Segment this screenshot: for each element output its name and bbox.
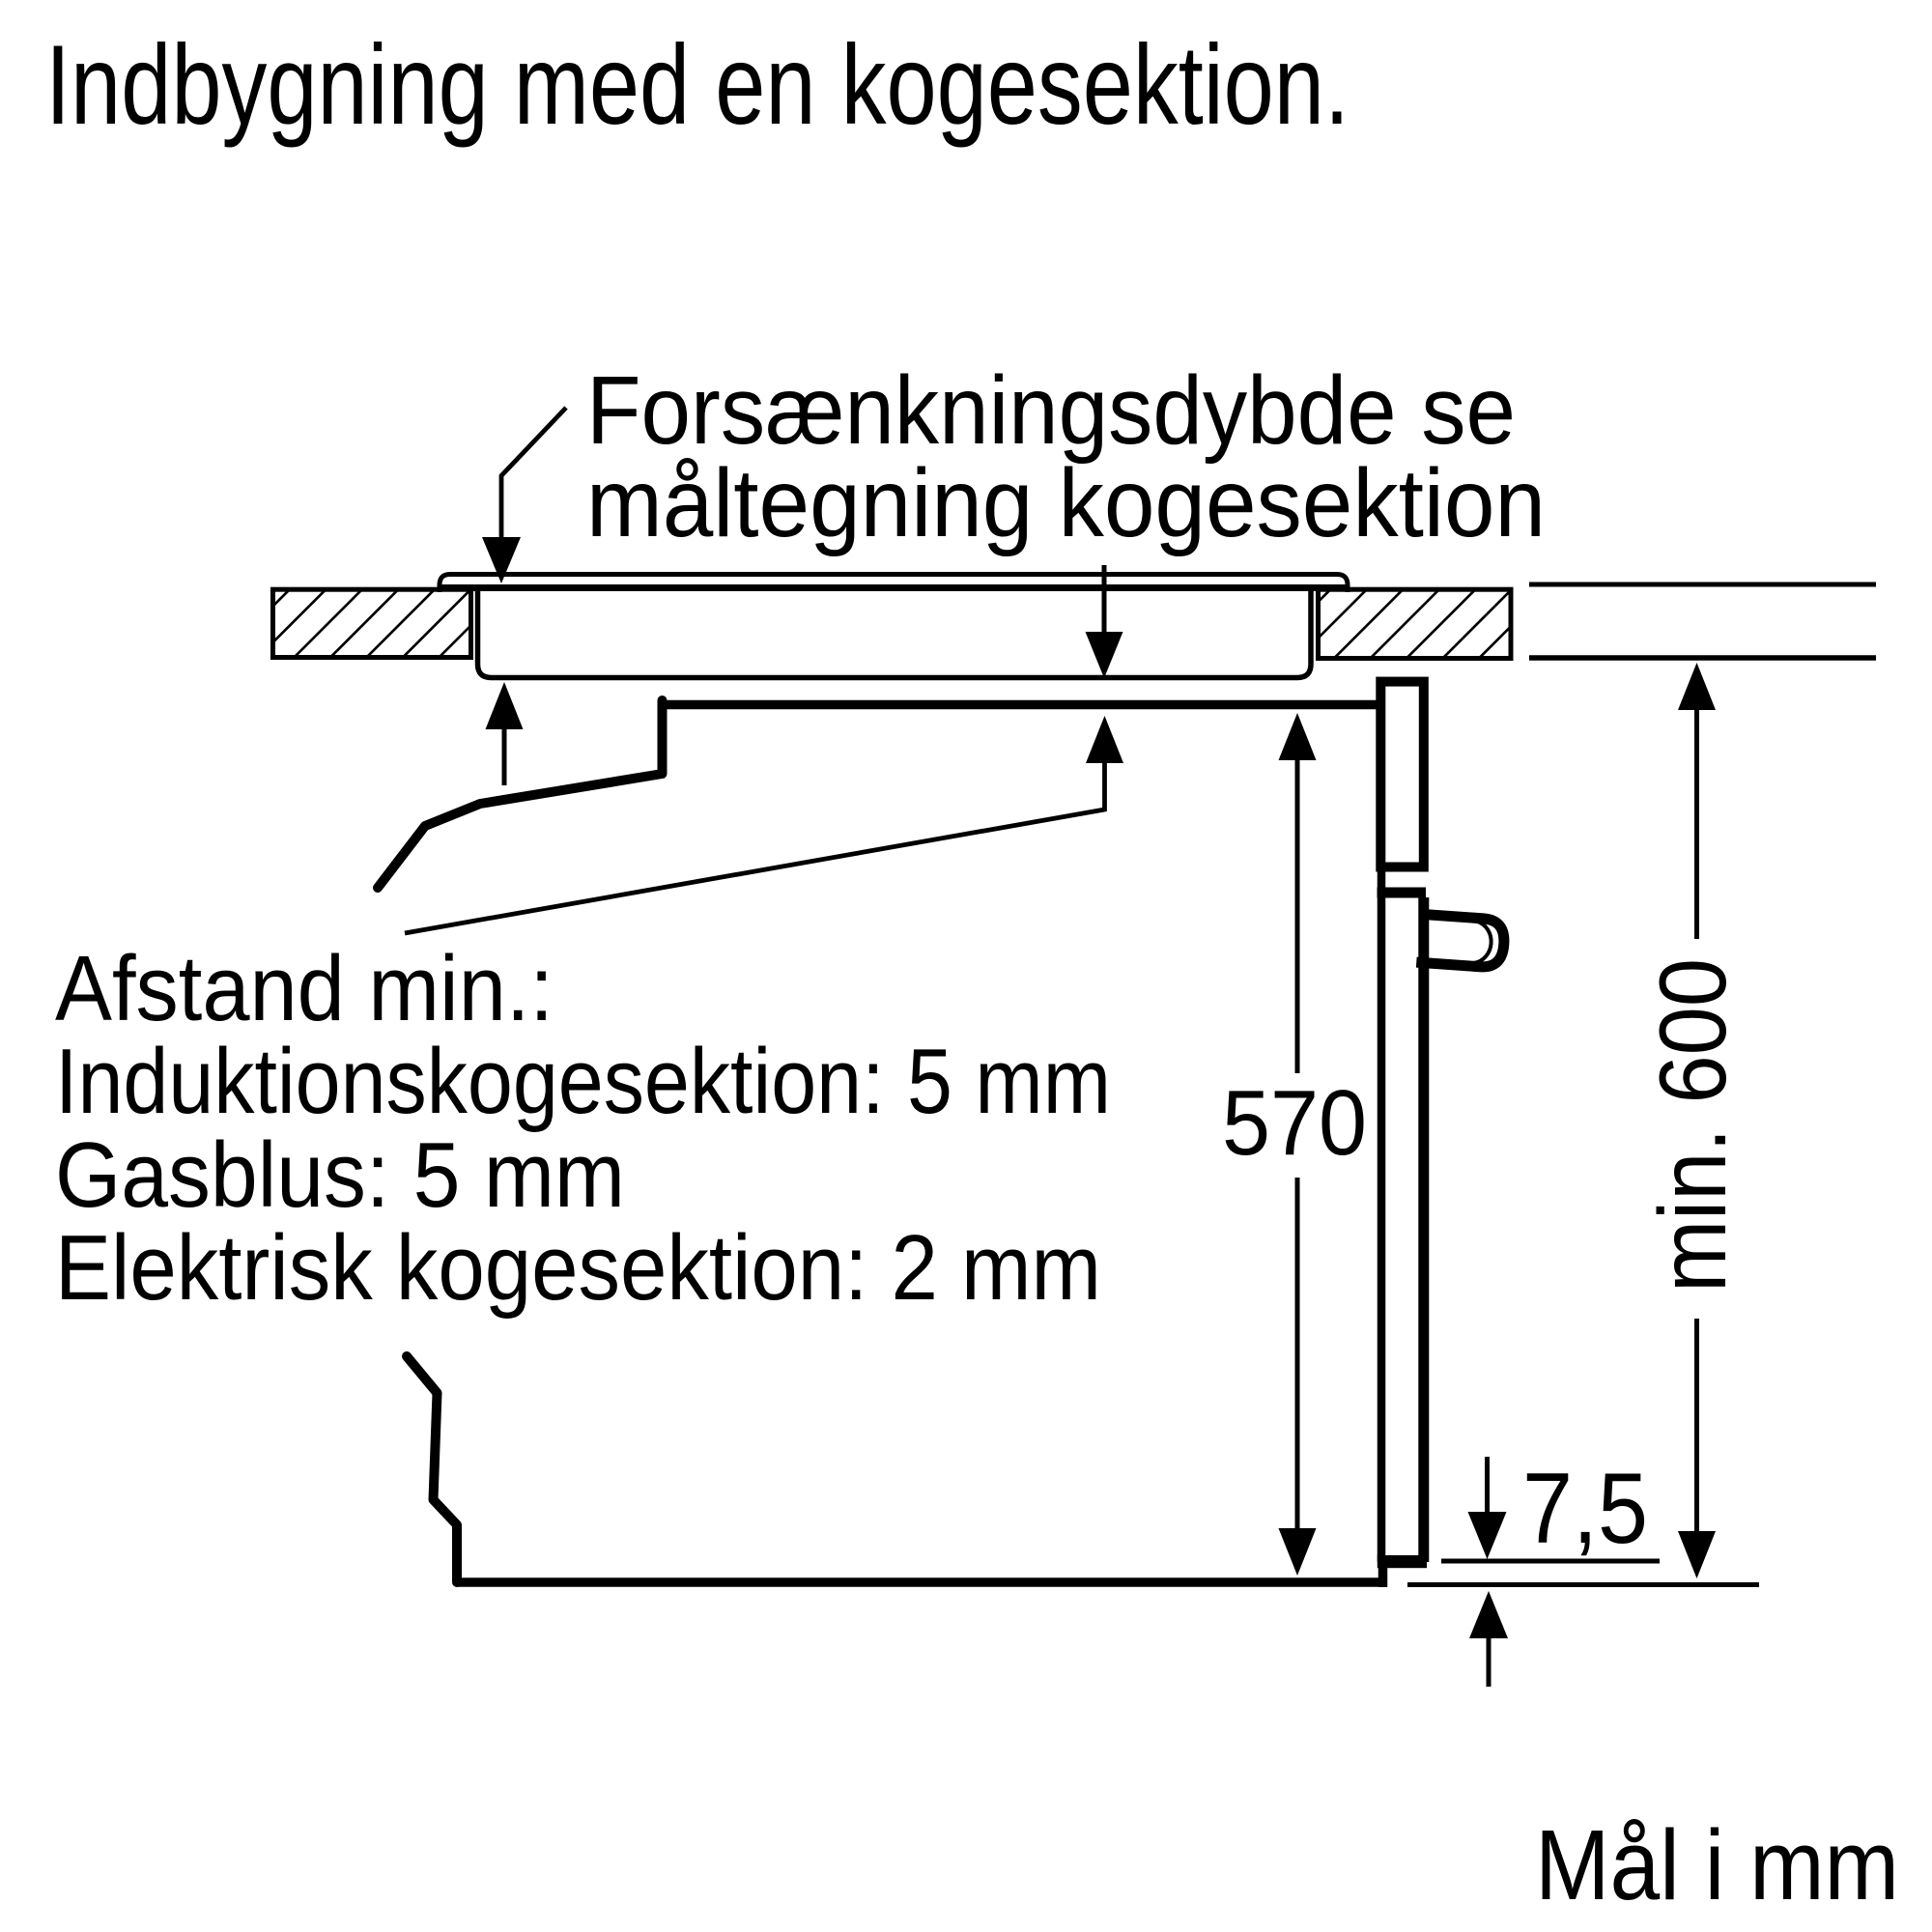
svg-text:7,5: 7,5 (1522, 1453, 1648, 1565)
svg-text:570: 570 (1222, 1071, 1367, 1175)
svg-text:min. 600: min. 600 (1639, 958, 1746, 1293)
svg-text:Afstand min.:: Afstand min.: (55, 937, 554, 1040)
svg-text:Gasblus: 5 mm: Gasblus: 5 mm (55, 1123, 625, 1227)
svg-text:Elektrisk kogesektion: 2 mm: Elektrisk kogesektion: 2 mm (55, 1216, 1101, 1320)
svg-text:Induktionskogesektion: 5 mm: Induktionskogesektion: 5 mm (55, 1030, 1111, 1133)
svg-text:måltegning kogesektion: måltegning kogesektion (586, 449, 1546, 557)
svg-text:Indbygning med en kogesektion.: Indbygning med en kogesektion. (45, 21, 1350, 148)
svg-text:Mål i mm: Mål i mm (1535, 1809, 1899, 1920)
